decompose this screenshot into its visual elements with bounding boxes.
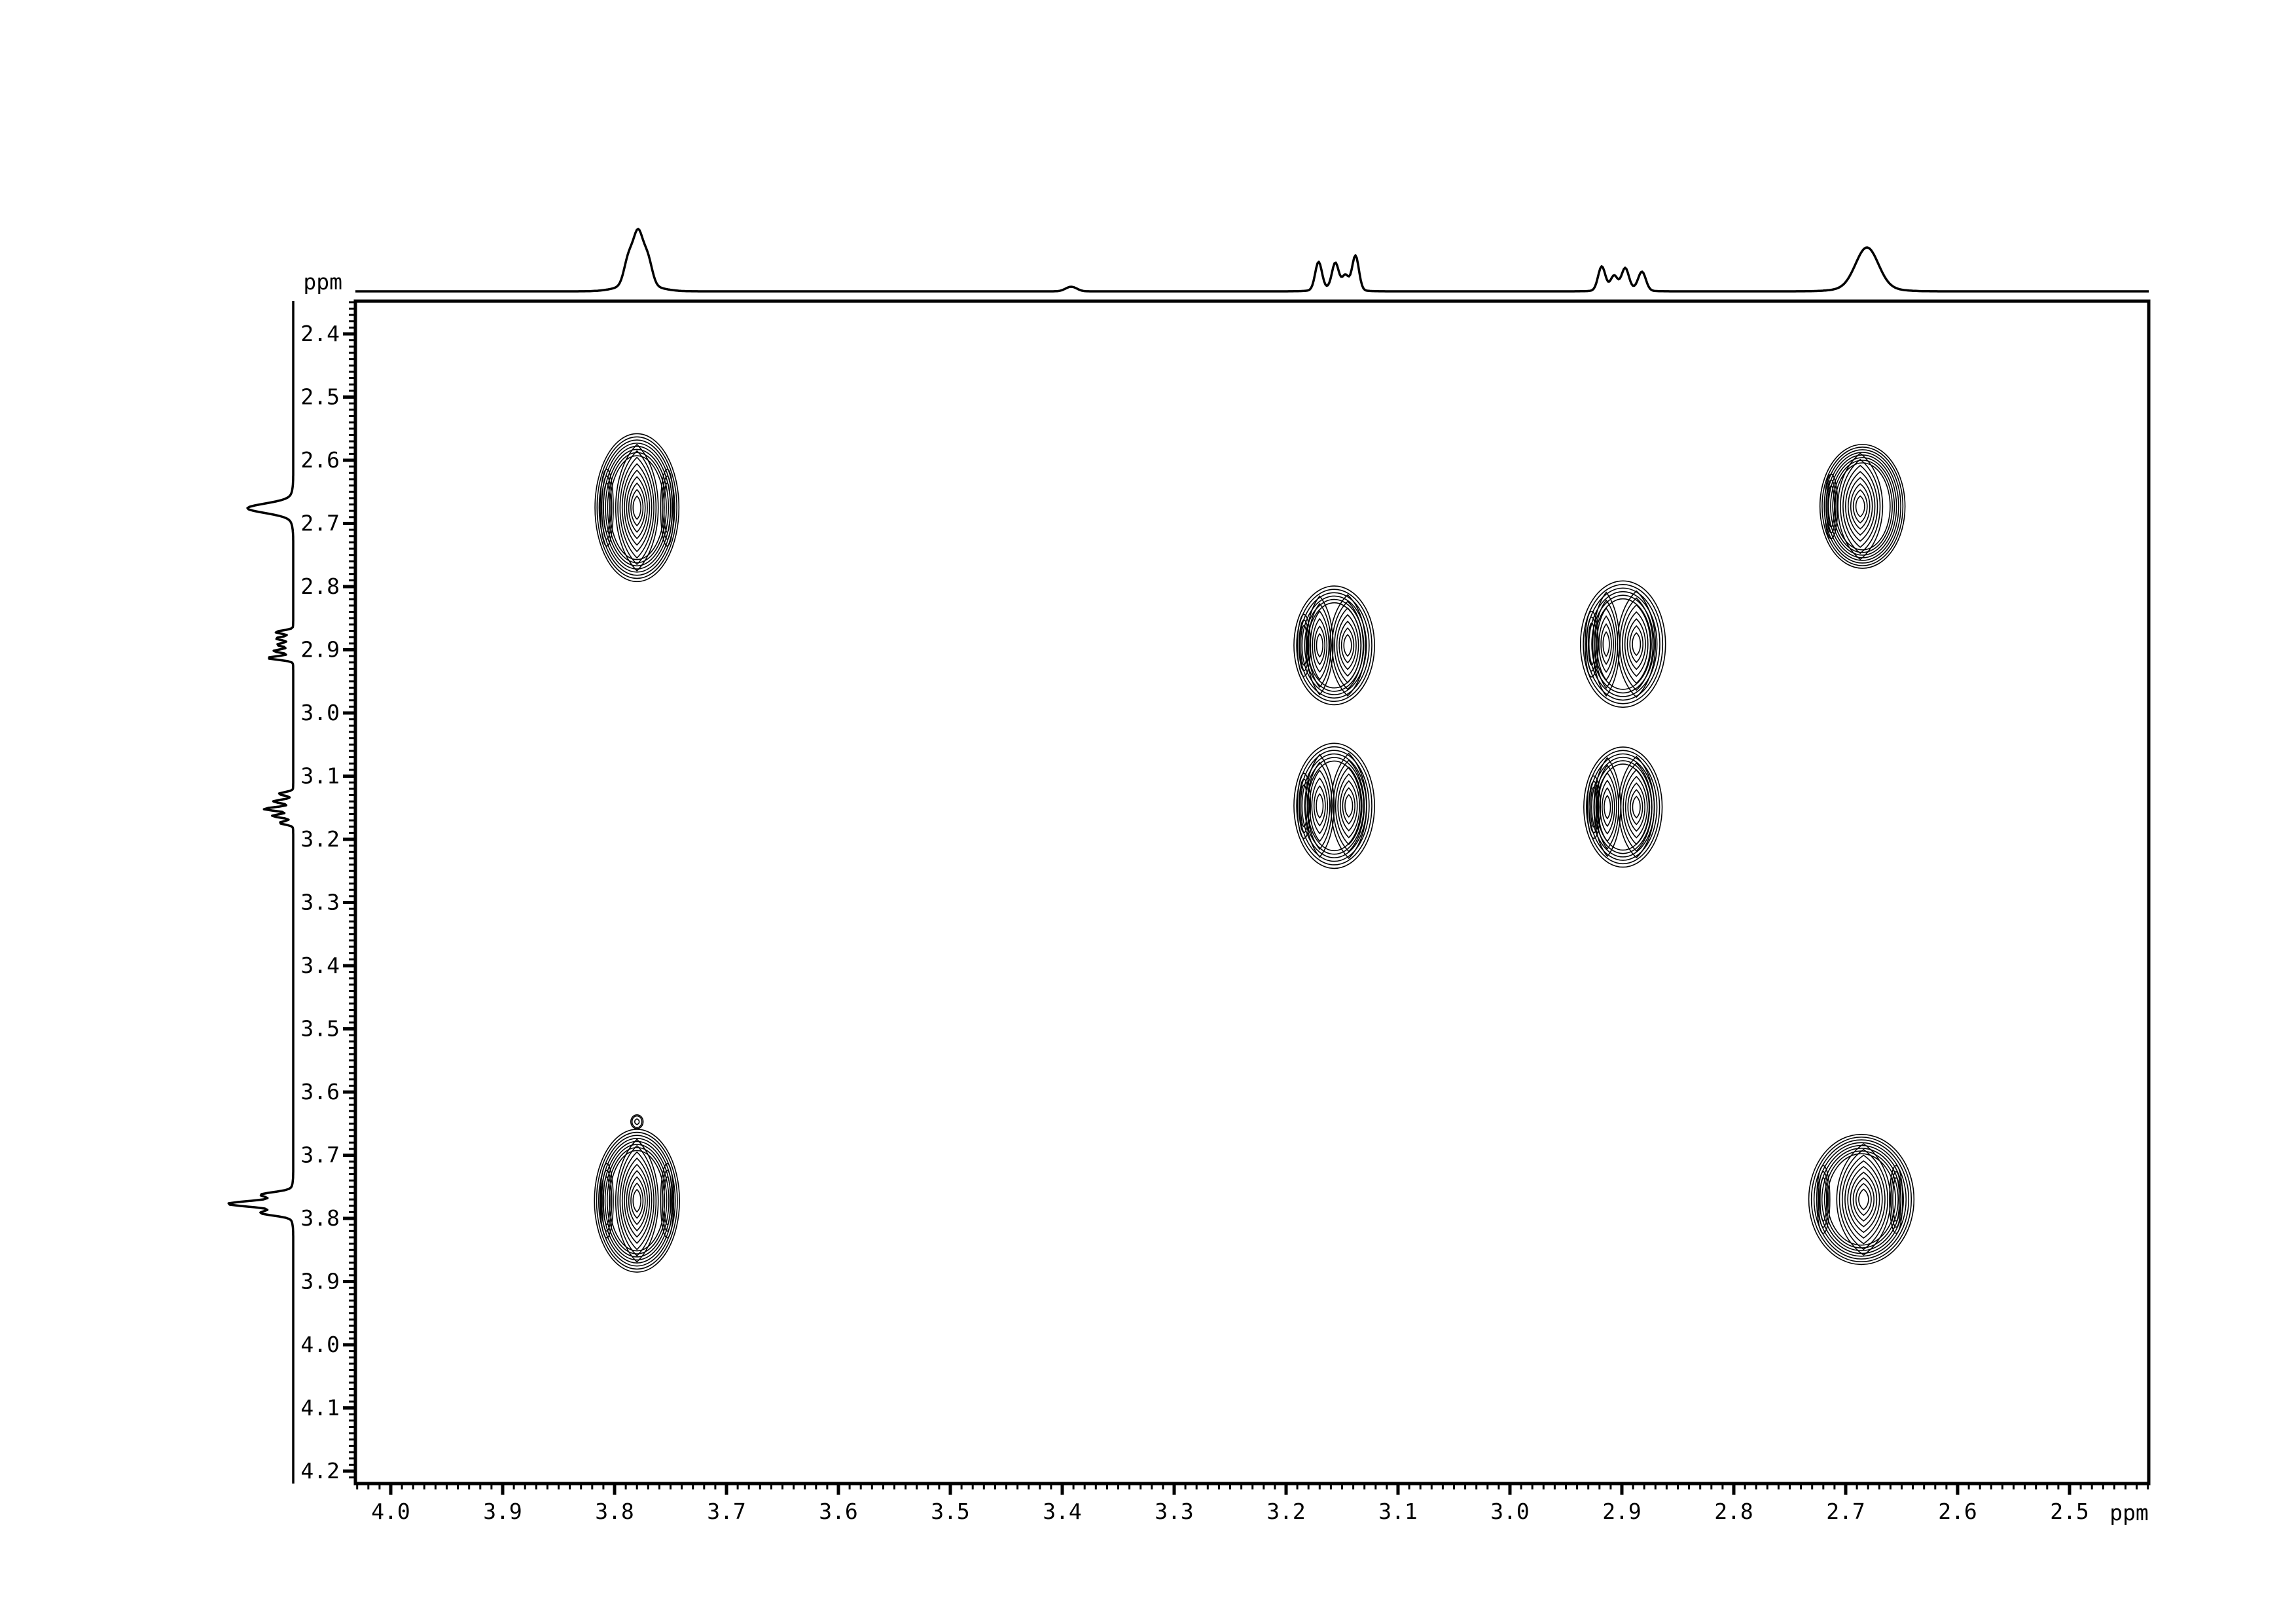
contour-lobe-ring bbox=[620, 458, 654, 558]
contour-lobe-ring bbox=[1617, 591, 1655, 697]
contour-lobe-ring bbox=[1630, 626, 1643, 663]
contour-peaks bbox=[594, 433, 1914, 1272]
contour-lobe-ring bbox=[626, 1171, 647, 1231]
contour-peak bbox=[594, 1129, 679, 1272]
contour-lobe-ring bbox=[635, 1119, 639, 1125]
contour-envelope-ring bbox=[605, 1144, 668, 1257]
contour-envelope-ring bbox=[607, 452, 666, 562]
contour-peak bbox=[631, 1115, 643, 1129]
x-axis-tick-label: 4.0 bbox=[371, 1499, 410, 1524]
contour-envelope-ring bbox=[632, 1116, 642, 1128]
contour-envelope-ring bbox=[1822, 1148, 1901, 1251]
contour-lobe-ring bbox=[624, 470, 649, 545]
contour-lobe-ring bbox=[1626, 776, 1647, 838]
cosy-spectrum-canvas: 4.03.93.83.73.63.53.43.33.23.13.02.92.82… bbox=[0, 0, 2296, 1623]
x-axis-tick-label: 2.9 bbox=[1602, 1499, 1641, 1524]
y-axis-tick-label: 4.2 bbox=[300, 1458, 340, 1484]
contour-peak bbox=[1809, 1135, 1914, 1265]
contour-lobe-ring bbox=[1842, 1155, 1885, 1243]
contour-peak bbox=[1294, 743, 1374, 868]
y-axis-tick-label: 2.7 bbox=[300, 511, 340, 536]
contour-lobe-ring bbox=[624, 1165, 649, 1237]
x-axis-tick-label: 3.4 bbox=[1043, 1499, 1082, 1524]
contour-lobe-ring bbox=[1632, 633, 1640, 655]
contour-envelope-ring bbox=[605, 449, 668, 566]
contour-lobe-ring bbox=[1345, 795, 1353, 817]
x-axis-tick-label: 3.7 bbox=[707, 1499, 746, 1524]
contour-lobe-ring bbox=[1336, 767, 1362, 845]
y-axis-tick-label: 2.9 bbox=[300, 637, 340, 663]
contour-lobe-ring bbox=[620, 1152, 654, 1250]
x-axis-tick-label: 3.2 bbox=[1266, 1499, 1306, 1524]
contour-lobe-ring bbox=[1338, 774, 1359, 837]
contour-lobe-ring bbox=[618, 451, 656, 564]
contour-lobe-ring bbox=[618, 1146, 656, 1256]
x-axis-unit-label: ppm bbox=[2109, 1502, 2149, 1523]
contour-lobe-ring bbox=[1317, 634, 1323, 657]
x-axis: 4.03.93.83.73.63.53.43.33.23.13.02.92.82… bbox=[371, 1484, 2089, 1524]
contour-lobe-ring bbox=[1310, 611, 1329, 680]
y-axis-tick-label: 2.8 bbox=[300, 574, 340, 599]
contour-envelope-ring bbox=[1829, 455, 1897, 558]
contour-lobe-ring bbox=[1316, 794, 1323, 818]
contour-peak bbox=[1584, 747, 1662, 867]
x-axis-tick-label: 2.5 bbox=[2050, 1499, 2089, 1524]
y-axis-tick-label: 3.2 bbox=[300, 826, 340, 852]
y-axis-tick-label: 3.0 bbox=[300, 700, 340, 725]
x-axis-tick-label: 3.5 bbox=[931, 1499, 970, 1524]
contour-lobe-ring bbox=[1603, 632, 1609, 656]
left-projection-trace bbox=[228, 301, 293, 1484]
x-axis-tick-label: 2.7 bbox=[1826, 1499, 1865, 1524]
x-axis-tick-label: 3.1 bbox=[1378, 1499, 1418, 1524]
y-axis-tick-label: 2.6 bbox=[300, 447, 340, 473]
spectrum-figure: 4.03.93.83.73.63.53.43.33.23.13.02.92.82… bbox=[0, 0, 2296, 1623]
x-axis-tick-label: 2.6 bbox=[1938, 1499, 1977, 1524]
contour-lobe-ring bbox=[1625, 612, 1648, 676]
contour-lobe-ring bbox=[1335, 608, 1361, 683]
top-projection-trace bbox=[355, 229, 2149, 291]
y-axis-tick-label: 3.6 bbox=[300, 1079, 340, 1104]
contour-envelope-ring bbox=[1825, 1151, 1899, 1248]
y-axis-tick-label: 4.1 bbox=[300, 1395, 340, 1421]
contour-lobe-ring bbox=[1596, 765, 1619, 848]
x-axis-tick-label: 3.9 bbox=[483, 1499, 522, 1524]
contour-envelope-ring bbox=[631, 1115, 643, 1129]
y-axis-tick-label: 3.5 bbox=[300, 1016, 340, 1042]
contour-lobe-ring bbox=[1310, 771, 1330, 841]
contour-lobe-ring bbox=[626, 477, 647, 538]
x-axis-tick-label: 2.8 bbox=[1714, 1499, 1753, 1524]
x-axis-tick-label: 3.6 bbox=[819, 1499, 858, 1524]
contour-lobe-ring bbox=[1623, 605, 1651, 684]
y-axis-tick-label: 3.7 bbox=[300, 1142, 340, 1168]
contour-lobe-ring bbox=[1336, 615, 1358, 676]
contour-peak bbox=[1581, 581, 1666, 707]
contour-lobe-ring bbox=[633, 1190, 641, 1212]
y-axis: 2.42.52.62.72.82.93.03.13.23.33.43.53.63… bbox=[300, 321, 355, 1484]
contour-lobe-ring bbox=[1856, 496, 1865, 517]
contour-lobe-ring bbox=[1848, 478, 1873, 536]
contour-lobe-ring bbox=[1840, 1150, 1888, 1249]
y-axis-unit-label: ppm bbox=[303, 271, 342, 293]
contour-lobe-ring bbox=[1314, 786, 1325, 826]
y-axis-tick-label: 3.8 bbox=[300, 1205, 340, 1231]
y-axis-tick-label: 3.1 bbox=[300, 763, 340, 789]
contour-lobe-ring bbox=[1632, 796, 1640, 818]
contour-lobe-ring bbox=[1859, 1190, 1869, 1210]
contour-lobe-ring bbox=[1848, 1167, 1880, 1232]
contour-lobe-ring bbox=[633, 496, 641, 519]
contour-peak bbox=[1294, 586, 1374, 704]
nmr-2d-cosy-spectrum-page: { "figure": { "background": "#ffffff", "… bbox=[0, 0, 2296, 1623]
y-axis-tick-label: 3.4 bbox=[300, 953, 340, 978]
y-axis-tick-label: 3.9 bbox=[300, 1269, 340, 1294]
contour-lobe-ring bbox=[1344, 634, 1352, 656]
x-axis-tick-label: 3.3 bbox=[1155, 1499, 1194, 1524]
contour-peak bbox=[1820, 445, 1905, 568]
y-axis-tick-label: 2.5 bbox=[300, 384, 340, 410]
x-axis-tick-label: 3.8 bbox=[595, 1499, 634, 1524]
contour-lobe-ring bbox=[1850, 1173, 1876, 1227]
contour-envelope-ring bbox=[596, 1133, 677, 1269]
contour-peak bbox=[595, 433, 679, 581]
y-axis-tick-label: 4.0 bbox=[300, 1332, 340, 1357]
contour-lobe-ring bbox=[1846, 471, 1875, 541]
contour-lobe-ring bbox=[1623, 770, 1649, 845]
contour-lobe-ring bbox=[1604, 795, 1611, 818]
x-axis-tick-label: 3.0 bbox=[1490, 1499, 1530, 1524]
y-axis-tick-label: 3.3 bbox=[300, 890, 340, 915]
contour-lobe-ring bbox=[1840, 460, 1880, 553]
y-axis-tick-label: 2.4 bbox=[300, 321, 340, 346]
